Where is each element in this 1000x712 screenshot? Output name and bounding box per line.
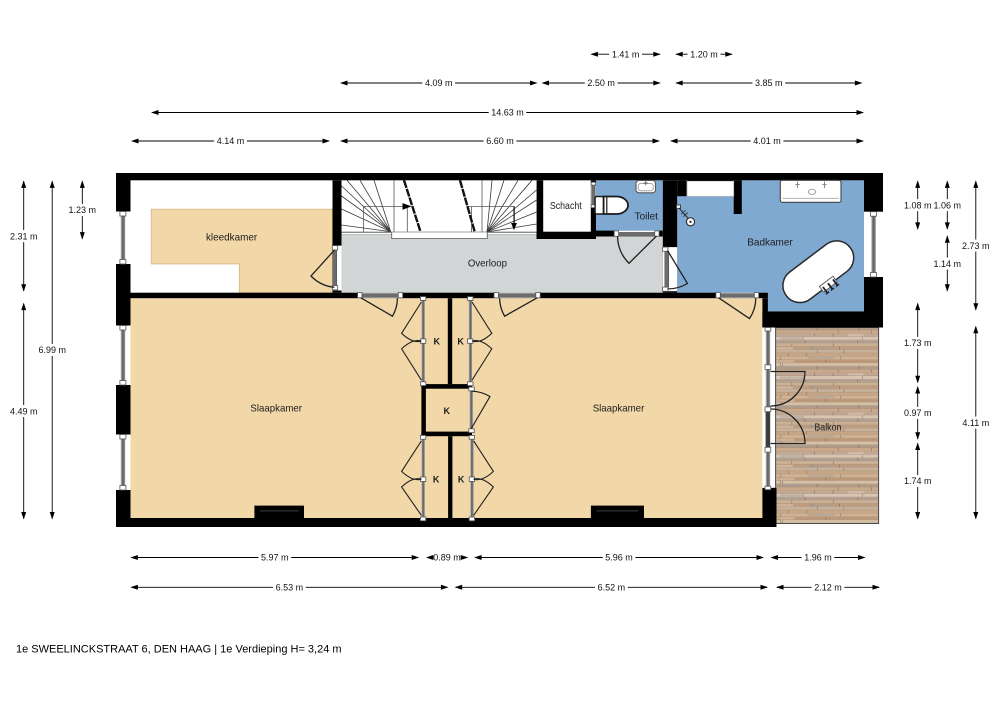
svg-text:1.96 m: 1.96 m — [804, 553, 832, 563]
svg-text:1.14 m: 1.14 m — [934, 259, 962, 269]
svg-text:Overloop: Overloop — [468, 257, 507, 269]
svg-text:1e SWEELINCKSTRAAT 6, DEN HAAG: 1e SWEELINCKSTRAAT 6, DEN HAAG | 1e Verd… — [16, 644, 342, 656]
svg-text:0.89 m: 0.89 m — [433, 553, 461, 563]
svg-text:Schacht: Schacht — [550, 200, 582, 212]
svg-text:1.06 m: 1.06 m — [934, 200, 962, 210]
svg-text:kleedkamer: kleedkamer — [206, 232, 258, 244]
svg-text:4.01 m: 4.01 m — [753, 136, 781, 146]
svg-text:4.09 m: 4.09 m — [425, 78, 453, 88]
svg-text:2.12 m: 2.12 m — [814, 583, 842, 593]
svg-text:0.97 m: 0.97 m — [904, 408, 932, 418]
svg-text:3.85 m: 3.85 m — [755, 78, 783, 88]
svg-text:5.96 m: 5.96 m — [605, 553, 633, 563]
svg-text:14.63 m: 14.63 m — [491, 108, 524, 118]
svg-text:1.74 m: 1.74 m — [904, 476, 932, 486]
svg-text:K: K — [457, 337, 464, 347]
svg-text:1.73 m: 1.73 m — [904, 338, 932, 348]
svg-text:2.31 m: 2.31 m — [10, 231, 38, 241]
svg-text:4.14 m: 4.14 m — [217, 136, 245, 146]
svg-text:2.73 m: 2.73 m — [962, 241, 990, 251]
svg-text:Balkon: Balkon — [814, 421, 841, 433]
svg-text:2.50 m: 2.50 m — [587, 78, 615, 88]
svg-text:Toilet: Toilet — [635, 211, 658, 223]
svg-text:1.41 m: 1.41 m — [612, 49, 640, 59]
svg-text:Slaapkamer: Slaapkamer — [250, 403, 302, 415]
svg-text:1.23 m: 1.23 m — [69, 205, 97, 215]
svg-text:5.97 m: 5.97 m — [261, 553, 289, 563]
svg-text:6.60 m: 6.60 m — [486, 136, 514, 146]
svg-text:6.99 m: 6.99 m — [38, 345, 66, 355]
svg-text:Slaapkamer: Slaapkamer — [593, 403, 645, 415]
svg-text:K: K — [433, 475, 440, 485]
svg-text:4.11 m: 4.11 m — [962, 418, 989, 428]
svg-text:K: K — [458, 475, 465, 485]
svg-text:K: K — [434, 337, 441, 347]
svg-text:6.52 m: 6.52 m — [598, 583, 626, 593]
svg-text:1.08 m: 1.08 m — [904, 200, 932, 210]
svg-text:K: K — [444, 406, 451, 416]
svg-text:1.20 m: 1.20 m — [690, 49, 718, 59]
svg-text:Badkamer: Badkamer — [747, 237, 793, 249]
svg-text:6.53 m: 6.53 m — [276, 583, 304, 593]
svg-text:4.49 m: 4.49 m — [10, 406, 38, 416]
